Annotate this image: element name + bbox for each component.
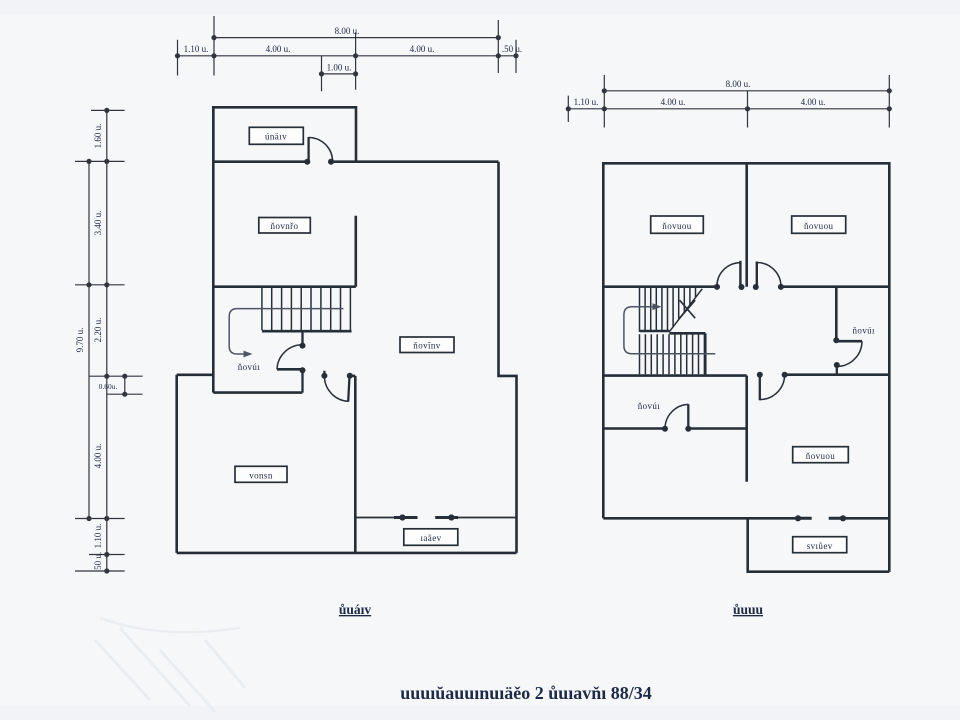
svg-text:1.10 u.: 1.10 u.: [93, 524, 103, 549]
svg-text:ňovuou: ňovuou: [662, 221, 692, 231]
svg-text:0.60u.: 0.60u.: [99, 382, 118, 391]
svg-text:ňovúı: ňovúı: [852, 326, 875, 336]
svg-text:ňovúı: ňovúı: [238, 362, 261, 372]
svg-text:ňovuou: ňovuou: [806, 451, 836, 461]
svg-text:9.70 u.: 9.70 u.: [75, 328, 85, 353]
svg-text:ňovuou: ňovuou: [804, 221, 833, 231]
svg-text:ıaãev: ıaãev: [421, 533, 442, 543]
svg-text:.50 u.: .50 u.: [502, 44, 522, 54]
svg-text:1.10 u.: 1.10 u.: [574, 97, 599, 107]
svg-text:2.20 u.: 2.20 u.: [93, 318, 103, 343]
svg-text:1.10 u.: 1.10 u.: [184, 44, 209, 54]
svg-text:.50 u.: .50 u.: [93, 552, 103, 572]
svg-text:únäıv: únäıv: [265, 132, 287, 142]
svg-text:vonsn: vonsn: [249, 471, 273, 481]
svg-text:uuuıŭauuınuıäěo 2 ůuıavňı 88/3: uuuıŭauuınuıäěo 2 ůuıavňı 88/34: [400, 683, 652, 703]
svg-text:4.00 u.: 4.00 u.: [93, 444, 103, 469]
svg-text:ňovúı: ňovúı: [638, 401, 661, 411]
svg-text:svıũev: svıũev: [807, 541, 833, 551]
svg-text:ůuuu: ůuuu: [733, 602, 764, 617]
svg-text:ňovnřo: ňovnřo: [271, 221, 299, 231]
svg-text:4.00 u.: 4.00 u.: [801, 97, 826, 107]
svg-text:8.00 u.: 8.00 u.: [726, 79, 751, 89]
svg-text:ňovĩnv: ňovĩnv: [413, 341, 441, 351]
svg-text:4.00 u.: 4.00 u.: [266, 44, 291, 54]
svg-text:4.00 u.: 4.00 u.: [661, 97, 686, 107]
svg-text:3.40 u.: 3.40 u.: [93, 211, 103, 236]
svg-text:1.00 u.: 1.00 u.: [327, 63, 352, 73]
svg-text:1.60 u.: 1.60 u.: [93, 124, 103, 149]
svg-text:4.00 u.: 4.00 u.: [410, 44, 435, 54]
svg-text:ůuáıv: ůuáıv: [339, 602, 372, 617]
svg-text:8.00 u.: 8.00 u.: [335, 26, 360, 36]
